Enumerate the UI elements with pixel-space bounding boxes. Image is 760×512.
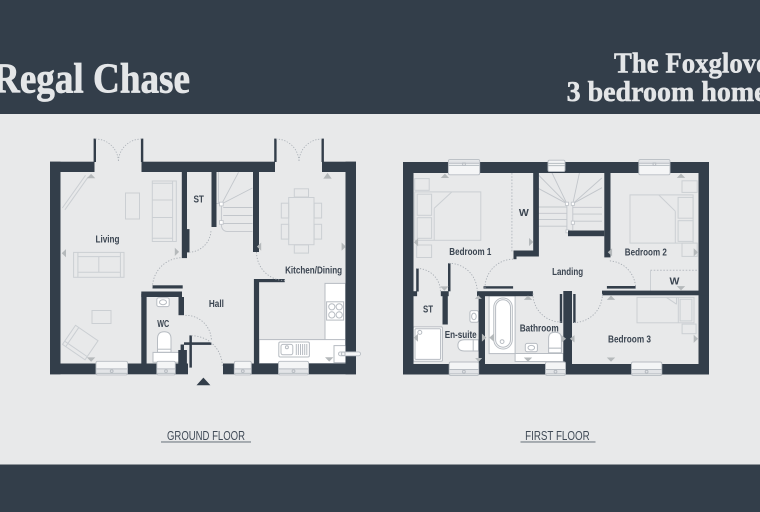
svg-text:FIRST FLOOR: FIRST FLOOR bbox=[525, 429, 590, 443]
svg-text:3 bedroom home: 3 bedroom home bbox=[567, 77, 760, 108]
svg-text:W: W bbox=[670, 275, 680, 287]
svg-text:En-suite: En-suite bbox=[445, 329, 477, 341]
svg-text:Bathroom: Bathroom bbox=[520, 322, 559, 334]
svg-text:ST: ST bbox=[193, 193, 204, 205]
svg-text:Regal Chase: Regal Chase bbox=[0, 56, 190, 102]
svg-text:Kitchen/Dining: Kitchen/Dining bbox=[285, 265, 342, 277]
svg-text:Hall: Hall bbox=[209, 298, 224, 310]
svg-text:GROUND FLOOR: GROUND FLOOR bbox=[167, 429, 245, 443]
svg-text:Bedroom 2: Bedroom 2 bbox=[625, 247, 667, 259]
svg-text:Landing: Landing bbox=[552, 266, 583, 278]
svg-text:ST: ST bbox=[423, 303, 433, 315]
svg-text:W: W bbox=[519, 207, 529, 219]
svg-text:The Foxglove: The Foxglove bbox=[614, 49, 760, 80]
svg-text:Living: Living bbox=[96, 233, 120, 245]
svg-text:Bedroom 1: Bedroom 1 bbox=[449, 246, 491, 258]
svg-text:Bedroom 3: Bedroom 3 bbox=[608, 334, 651, 346]
svg-text:WC: WC bbox=[157, 318, 169, 330]
